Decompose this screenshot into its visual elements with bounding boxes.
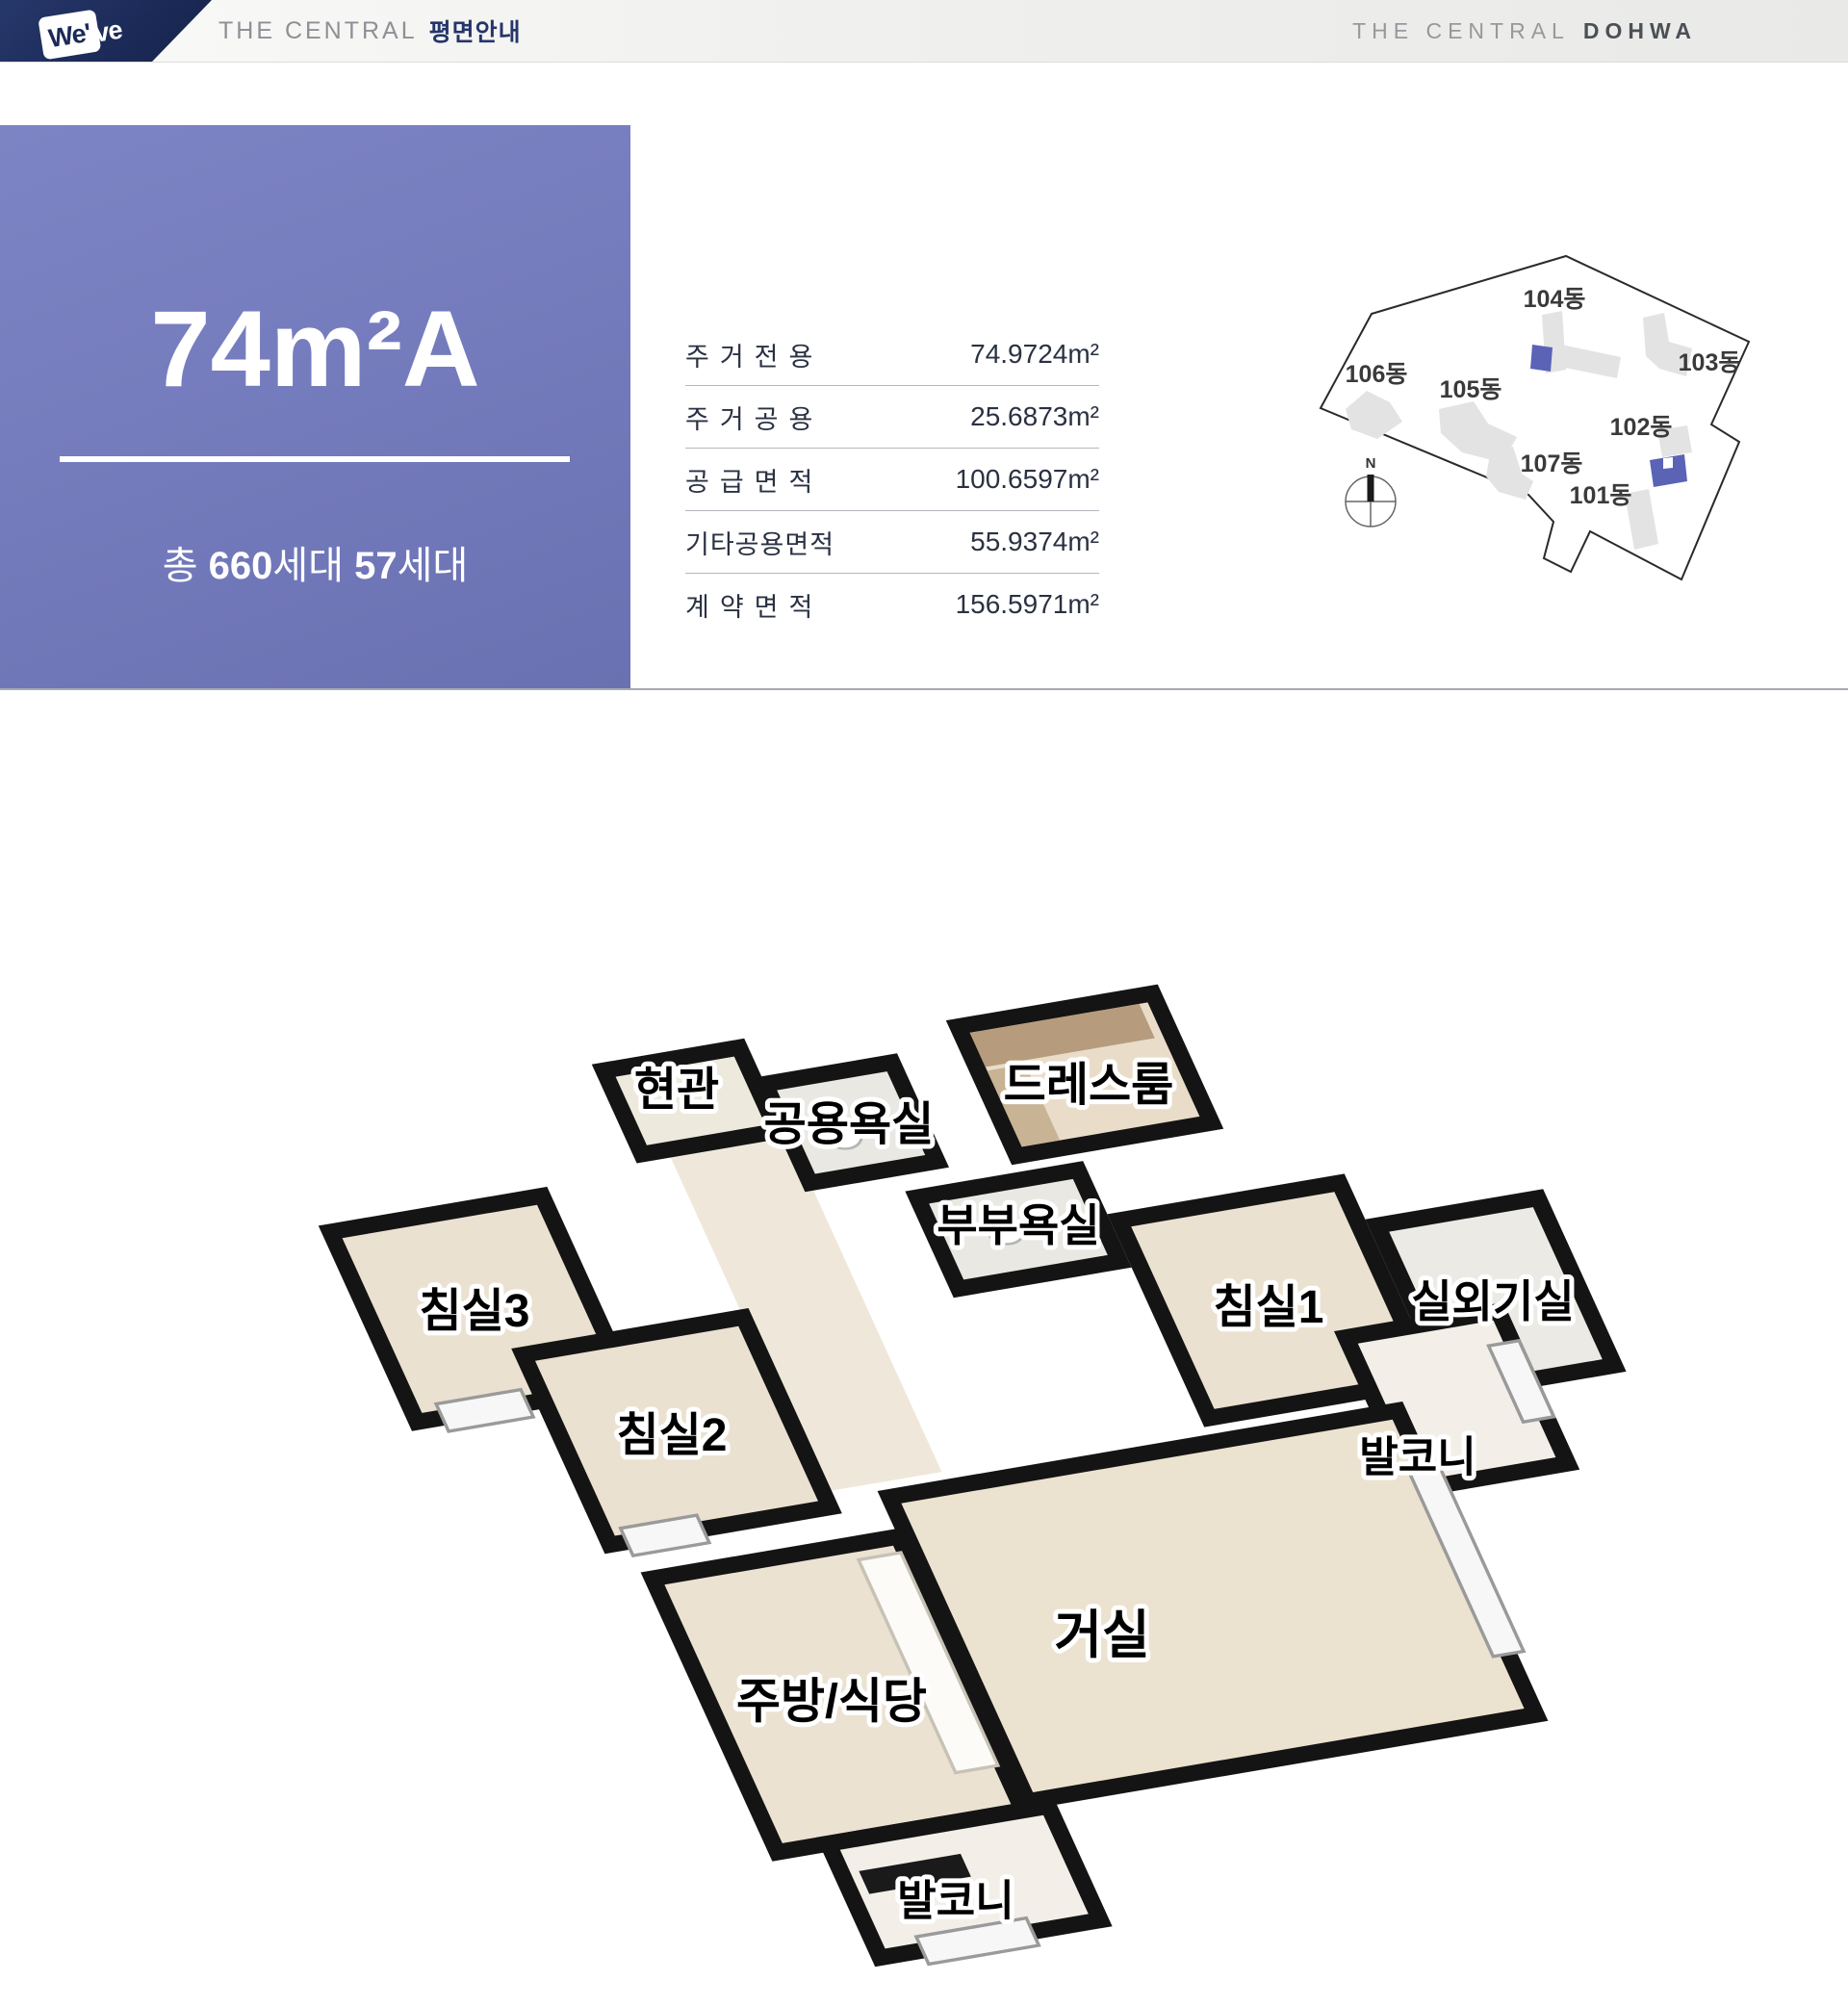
project-brand-prefix: THE CENTRAL xyxy=(1352,18,1570,44)
area-row-label: 계약면적 xyxy=(685,586,823,624)
room-label: 침실2 xyxy=(616,1410,727,1461)
room-label: 부부욕실 xyxy=(937,1200,1099,1250)
area-row-label: 기타공용면적 xyxy=(685,524,834,561)
room-label: 주방/식당 xyxy=(736,1675,927,1729)
site-building-label: 105동 xyxy=(1440,376,1502,403)
total-units-count: 660 xyxy=(209,545,273,587)
units-word2: 세대 xyxy=(398,545,469,587)
header-bar: We' ve THE CENTRAL 평면안내 THE CENTRAL DOHW… xyxy=(0,0,1848,63)
room-label: 침실3 xyxy=(419,1286,529,1337)
room-label: 발코니 xyxy=(1359,1433,1476,1480)
section-divider-line xyxy=(0,688,1848,690)
area-table-row: 공급면적100.6597m² xyxy=(685,448,1099,510)
weve-logo-text-light: ve xyxy=(92,15,124,49)
unit-type-title: 74m²A xyxy=(0,287,630,411)
area-row-value: 156.5971m² xyxy=(956,589,1099,620)
room-label: 드레스룸 xyxy=(1004,1060,1174,1111)
room-label: 발코니 xyxy=(897,1877,1014,1924)
unit-panel-divider xyxy=(60,456,570,462)
area-table-row: 주거공용25.6873m² xyxy=(685,385,1099,448)
site-building-label: 104동 xyxy=(1524,286,1586,313)
site-building-label: 101동 xyxy=(1570,482,1632,509)
unit-household-counts: 총 660세대 57세대 xyxy=(0,534,630,590)
page-title-brand: THE CENTRAL xyxy=(218,17,418,45)
project-brand: THE CENTRAL DOHWA xyxy=(1352,0,1697,62)
compass-icon: N xyxy=(1346,455,1396,527)
room-label: 거실 xyxy=(1054,1607,1149,1664)
site-building-label: 103동 xyxy=(1679,349,1741,376)
compass-north-label: N xyxy=(1366,455,1376,472)
area-spec-table: 주거전용74.9724m²주거공용25.6873m²공급면적100.6597m²… xyxy=(685,323,1099,635)
unit-type-panel: 74m²A 총 660세대 57세대 xyxy=(0,125,630,690)
brochure-page: We' ve THE CENTRAL 평면안내 THE CENTRAL DOHW… xyxy=(0,0,1848,2006)
room-label: 침실1 xyxy=(1213,1282,1323,1333)
area-row-label: 주거전용 xyxy=(685,336,823,373)
room-label: 현관 xyxy=(634,1065,719,1116)
room-label: 실외기실 xyxy=(1411,1276,1574,1326)
site-building-label: 102동 xyxy=(1610,414,1673,441)
area-row-value: 25.6873m² xyxy=(970,401,1099,432)
site-building-label: 106동 xyxy=(1346,361,1408,388)
area-row-label: 공급면적 xyxy=(685,461,823,499)
units-word: 세대 xyxy=(272,545,354,587)
project-brand-name: DOHWA xyxy=(1583,18,1697,44)
floor-plan: 현관공용욕실드레스룸부부욕실침실3침실1실외기실침실2발코니거실주방/식당발코니 xyxy=(231,895,1655,2006)
site-building-label: 107동 xyxy=(1521,450,1583,477)
area-row-value: 74.9724m² xyxy=(970,339,1099,370)
area-row-value: 100.6597m² xyxy=(956,464,1099,495)
area-table-row: 기타공용면적55.9374m² xyxy=(685,510,1099,573)
page-title: THE CENTRAL 평면안내 xyxy=(218,0,522,62)
building-104-unit xyxy=(1530,345,1553,372)
area-table-row: 주거전용74.9724m² xyxy=(685,323,1099,385)
area-row-label: 주거공용 xyxy=(685,399,823,436)
type-units-count: 57 xyxy=(354,545,398,587)
room-label: 공용욕실 xyxy=(764,1099,935,1150)
page-title-section: 평면안내 xyxy=(429,13,522,48)
counts-prefix: 총 xyxy=(163,545,209,587)
site-map: N 106동105동104동103동102동107동101동 xyxy=(1280,231,1800,616)
area-table-row: 계약면적156.5971m² xyxy=(685,573,1099,635)
area-row-value: 55.9374m² xyxy=(970,527,1099,557)
